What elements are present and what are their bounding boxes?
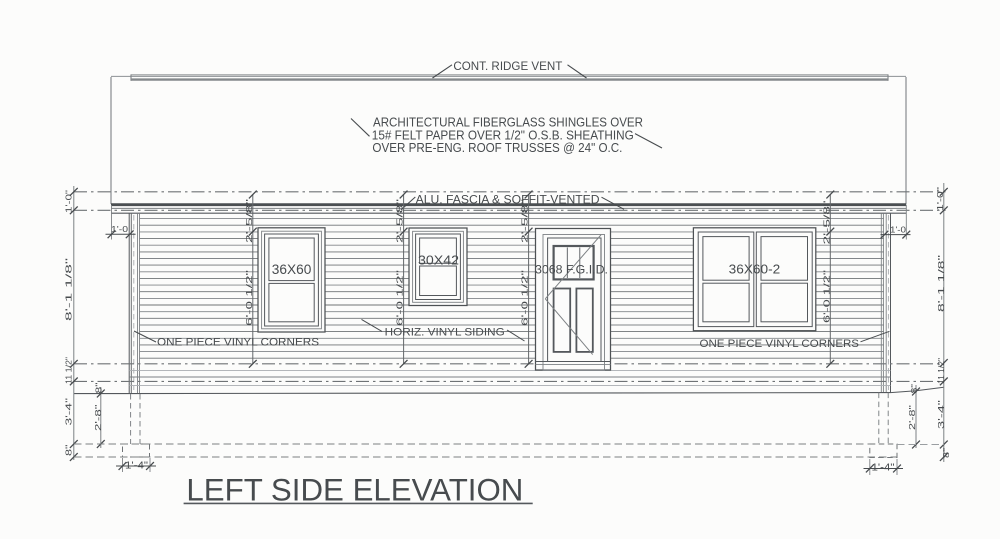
svg-text:2'-8": 2'-8" [907,405,917,430]
svg-text:8": 8" [941,448,951,458]
svg-text:8'-1 1/8": 8'-1 1/8" [936,255,946,312]
svg-text:11 1/2": 11 1/2" [936,358,946,384]
svg-text:ONE PIECE VINYL CORNERS: ONE PIECE VINYL CORNERS [700,338,860,350]
svg-text:6'-0 1/2": 6'-0 1/2" [520,270,530,326]
svg-text:CONT. RIDGE VENT: CONT. RIDGE VENT [453,60,562,73]
svg-text:36X60-2: 36X60-2 [729,262,781,277]
svg-text:1'-0: 1'-0 [111,224,128,234]
svg-text:6'-0 1/2": 6'-0 1/2" [821,270,831,323]
svg-text:2'-5/8": 2'-5/8" [395,199,405,243]
svg-text:2'-8": 2'-8" [93,405,103,432]
svg-text:8": 8" [94,383,104,394]
svg-text:6'-0 1/2": 6'-0 1/2" [395,270,405,326]
svg-text:1'-4": 1'-4" [125,460,149,471]
svg-text:3'-4": 3'-4" [936,400,946,429]
svg-text:11 1/2": 11 1/2" [64,357,74,384]
svg-text:8'-1 1/8": 8'-1 1/8" [64,258,74,321]
svg-text:1'-4": 1'-4" [872,463,896,474]
svg-text:2'-5/8": 2'-5/8" [244,199,254,243]
svg-text:ONE PIECE VINYL CORNERS: ONE PIECE VINYL CORNERS [157,337,319,349]
svg-text:2'-5/8": 2'-5/8" [821,201,831,245]
svg-text:6'-0 1/2": 6'-0 1/2" [244,270,254,326]
svg-text:3'-4": 3'-4" [64,398,74,426]
svg-text:30X42: 30X42 [418,253,459,267]
svg-text:8": 8" [64,445,74,457]
svg-text:36X60: 36X60 [272,261,312,277]
svg-text:8": 8" [909,384,919,394]
svg-text:1'-0": 1'-0" [64,190,74,213]
svg-text:OVER PRE-ENG. ROOF TRUSSES @ 2: OVER PRE-ENG. ROOF TRUSSES @ 24" O.C. [372,140,622,155]
svg-text:3068 F.G.I.D.: 3068 F.G.I.D. [535,262,608,276]
svg-text:1'-0: 1'-0 [890,224,906,234]
svg-text:2'-5/8": 2'-5/8" [520,199,530,243]
svg-text:LEFT SIDE ELEVATION: LEFT SIDE ELEVATION [186,472,523,508]
svg-text:1'-0": 1'-0" [935,187,945,211]
svg-text:HORIZ. VINYL SIDING: HORIZ. VINYL SIDING [385,326,505,338]
svg-text:ALU. FASCIA & SOFFIT-VENTED: ALU. FASCIA & SOFFIT-VENTED [416,192,600,206]
